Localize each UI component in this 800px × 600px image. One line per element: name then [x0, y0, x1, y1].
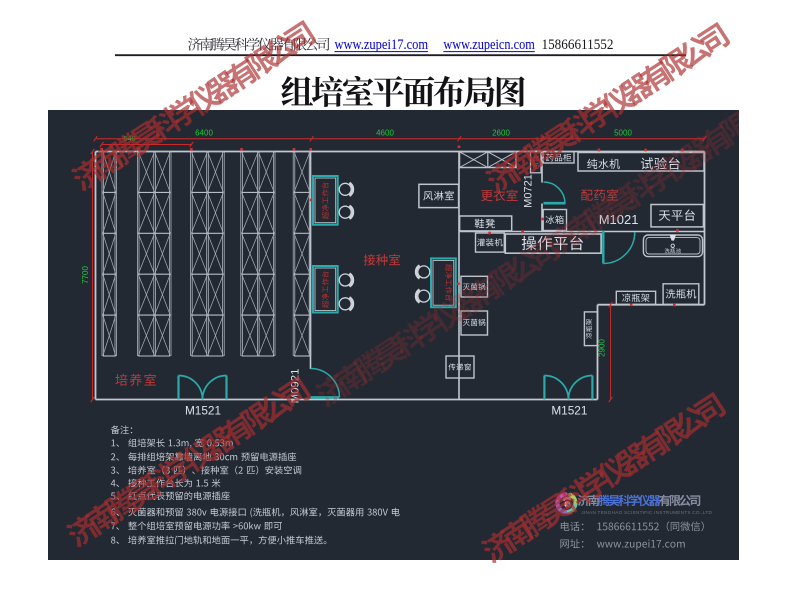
svg-text:www.zupeicn.com: www.zupeicn.com — [443, 37, 535, 53]
svg-text:2600: 2600 — [492, 129, 510, 138]
svg-text:5000: 5000 — [614, 129, 632, 138]
svg-text:JINAN TENGHAO SCIENTIFIC INSTR: JINAN TENGHAO SCIENTIFIC INSTRUMENTS CO.… — [581, 510, 712, 515]
svg-text:6400: 6400 — [195, 129, 213, 138]
svg-text:4600: 4600 — [376, 129, 394, 138]
svg-text:M1521: M1521 — [185, 404, 221, 418]
svg-text:www.zupei17.com: www.zupei17.com — [335, 37, 429, 53]
svg-text:M0721: M0721 — [523, 174, 535, 208]
svg-text:M1521: M1521 — [551, 403, 587, 417]
svg-text:7700: 7700 — [81, 266, 90, 284]
svg-text:15866611552: 15866611552 — [542, 37, 614, 53]
svg-text:2900: 2900 — [598, 339, 607, 357]
